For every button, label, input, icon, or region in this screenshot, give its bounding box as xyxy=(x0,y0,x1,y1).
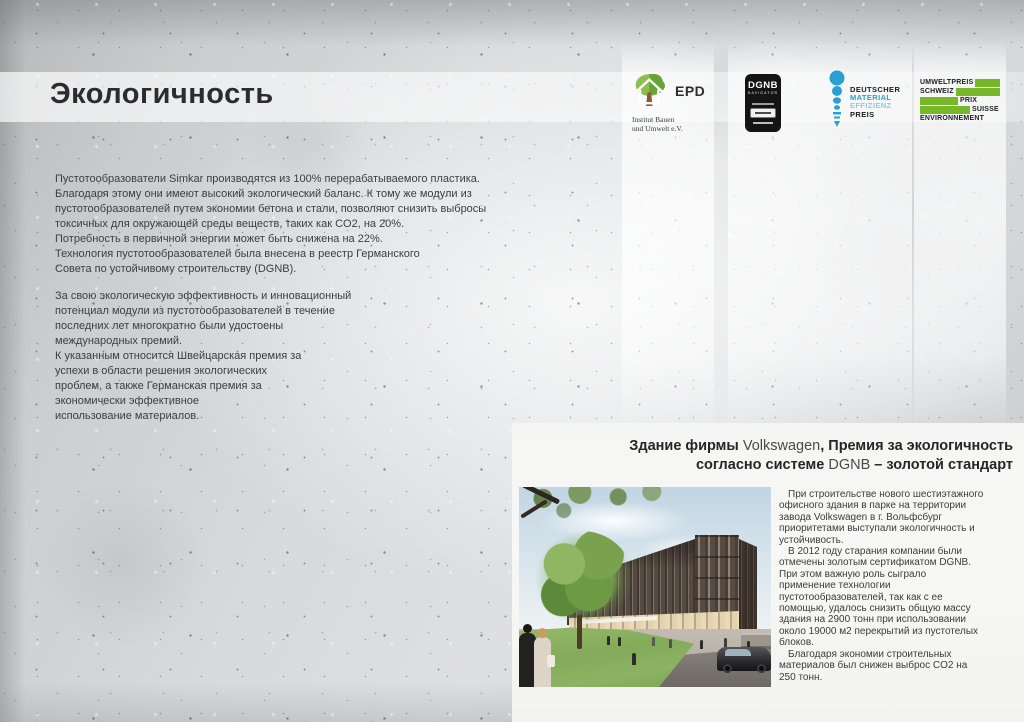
epd-logo: EPD Institut Bauen und Umwelt e.V. xyxy=(632,72,712,133)
umweltpreis-row-1: UMWELTPREIS xyxy=(920,79,1000,87)
dgnb-url-caption xyxy=(753,122,773,124)
photo-tree-trunk xyxy=(577,615,582,649)
dmep-line-preis: PREIS xyxy=(850,111,900,119)
schweiz-word: SCHWEIZ xyxy=(920,88,954,95)
umweltpreis-word: UMWELTPREIS xyxy=(920,79,973,86)
photo-pedestrian xyxy=(618,637,621,646)
umweltpreis-row-5: ENVIRONNEMENT xyxy=(920,115,1000,123)
case-study-text-column: При строительстве нового шестиэтажного о… xyxy=(779,489,1021,683)
dgnb-name-label: DGNB xyxy=(748,81,778,91)
umweltpreis-green-block xyxy=(975,79,1000,87)
photo-shopping-bag xyxy=(547,655,555,667)
intro-paragraph-2: За свою экологическую эффективность и ин… xyxy=(55,289,575,424)
photo-tree xyxy=(535,531,633,625)
epd-logo-top: EPD xyxy=(632,72,712,109)
page-title: Экологичность xyxy=(50,78,274,111)
umweltpreis-green-block xyxy=(956,88,1000,96)
suisse-word: SUISSE xyxy=(972,106,999,113)
photo-car-windshield xyxy=(725,649,751,656)
dgnb-registration-code xyxy=(755,112,771,115)
dgnb-navigator-label: NAVIGATOR xyxy=(748,91,778,96)
photo-pedestrian xyxy=(632,653,636,665)
case-study-paragraph-3: Благодаря экономии строительных материал… xyxy=(779,649,1021,683)
dgnb-registration-code-box xyxy=(750,108,776,118)
heading-bold-segment: Здание фирмы xyxy=(629,438,743,454)
umweltpreis-schweiz-logo: UMWELTPREIS SCHWEIZ PRIX SUISSE ENVIRONN… xyxy=(920,79,1000,124)
intro-text-block: Пустотообразователи Simkar производятся … xyxy=(55,172,575,424)
prix-word: PRIX xyxy=(960,97,977,104)
heading-bold-segment: , Премия за экологичность xyxy=(820,438,1013,454)
heading-bold-segment: – золотой стандарт xyxy=(870,457,1013,473)
photo-pedestrian xyxy=(607,636,610,645)
photo-pedestrian xyxy=(652,637,655,646)
umweltpreis-green-block xyxy=(920,97,958,105)
umweltpreis-row-2: SCHWEIZ xyxy=(920,88,1000,96)
heading-bold-segment: согласно системе xyxy=(696,457,828,473)
epd-tree-house-icon xyxy=(632,72,672,109)
photo-car-wheel xyxy=(757,664,766,673)
dgnb-registration-caption xyxy=(752,103,774,105)
epd-org-label: Institut Bauen und Umwelt e.V. xyxy=(632,115,712,133)
dgnb-navigator-logo: DGNB NAVIGATOR xyxy=(745,74,781,132)
photo-pedestrian xyxy=(724,638,727,647)
material-efficiency-prize-logo: DEUTSCHER MATERIAL EFFIZIENZ PREIS xyxy=(828,70,900,128)
case-study-paragraph-2: В 2012 году старания компании были отмеч… xyxy=(779,546,1021,649)
umweltpreis-row-4: SUISSE xyxy=(920,106,1000,114)
heading-brand-dgnb: DGNB xyxy=(828,457,870,473)
case-study-paragraph-1: При строительстве нового шестиэтажного о… xyxy=(779,489,1021,546)
dmep-wordmark: DEUTSCHER MATERIAL EFFIZIENZ PREIS xyxy=(850,86,900,128)
umweltpreis-green-block xyxy=(920,106,970,114)
umweltpreis-row-3: PRIX xyxy=(920,97,1000,105)
heading-brand-volkswagen: Volkswagen xyxy=(743,438,820,454)
epd-abbr-label: EPD xyxy=(675,83,705,99)
case-study-heading: Здание фирмы Volkswagen, Премия за эколо… xyxy=(583,437,1013,475)
dmep-dots-icon xyxy=(828,70,846,128)
photo-pedestrian xyxy=(700,640,703,649)
photo-building-side xyxy=(739,539,757,639)
environnement-word: ENVIRONNEMENT xyxy=(920,115,984,122)
intro-paragraph-1: Пустотообразователи Simkar производятся … xyxy=(55,172,575,277)
building-photo xyxy=(519,487,771,687)
photo-car-wheel xyxy=(723,664,732,673)
photo-pedestrian xyxy=(669,639,672,648)
brochure-page: Экологичность EPD Institut Bauen und Umw… xyxy=(0,0,1024,722)
